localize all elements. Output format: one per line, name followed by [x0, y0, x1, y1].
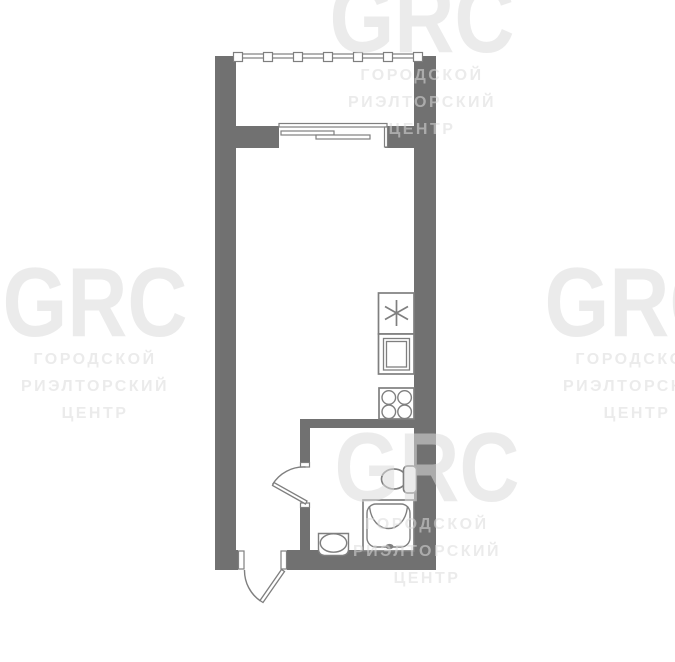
- toilet-tank-icon: [404, 466, 417, 493]
- window-frame-top: [279, 124, 387, 128]
- window-wall-left-stub: [236, 126, 279, 148]
- kitchen-sink-inner: [387, 342, 407, 368]
- bathroom-wall-lower-stub: [300, 507, 310, 550]
- bathroom-door-arc: [273, 467, 306, 485]
- entry-door-leaf: [260, 570, 285, 603]
- entry-door-jamb-right: [281, 551, 287, 569]
- stove-burner-icon: [398, 391, 412, 405]
- railing-post-icon: [294, 53, 303, 62]
- railing-post-icon: [354, 53, 363, 62]
- bathroom-wall-top: [300, 419, 414, 428]
- stove-burner-icon: [398, 405, 412, 419]
- bathroom-wall-upper-stub: [300, 428, 310, 463]
- shower-tray-icon: [363, 500, 414, 551]
- wall-left: [215, 56, 236, 570]
- bathroom-fixtures: [319, 466, 417, 556]
- washbasin-bowl-icon: [320, 534, 346, 552]
- stove-burner-icon: [382, 405, 396, 419]
- railing-post-icon: [384, 53, 393, 62]
- railing-post-icon: [324, 53, 333, 62]
- floor-plan: [0, 0, 675, 662]
- wall-bottom-left: [215, 550, 238, 570]
- shower-drain-icon: [386, 544, 394, 549]
- entry-door-jamb-left: [239, 551, 245, 569]
- railing-post-icon: [234, 53, 243, 62]
- wall-right: [414, 56, 436, 570]
- balcony-sliding-window: [279, 124, 388, 148]
- railing-post-icon: [264, 53, 273, 62]
- entry-door-arc: [244, 570, 260, 601]
- wall-bottom-right: [287, 550, 436, 570]
- window-wall-right-stub: [385, 126, 414, 148]
- balcony-railing: [234, 53, 423, 62]
- railing-post-icon: [414, 53, 423, 62]
- stove-burner-icon: [382, 391, 396, 405]
- bathroom-door-swing-icon: [273, 467, 308, 504]
- kitchen-units: [379, 293, 415, 419]
- window-sliding-panel: [316, 135, 370, 139]
- window-sliding-panel: [281, 131, 334, 135]
- window-frame-right: [385, 127, 388, 147]
- bathroom-door-leaf: [273, 483, 308, 505]
- entry-door-swing-icon: [244, 570, 284, 603]
- floor-plan-image: GRC ГОРОДСКОЙ РИЭЛТОРСКИЙ ЦЕНТР GRC ГОРО…: [0, 0, 675, 662]
